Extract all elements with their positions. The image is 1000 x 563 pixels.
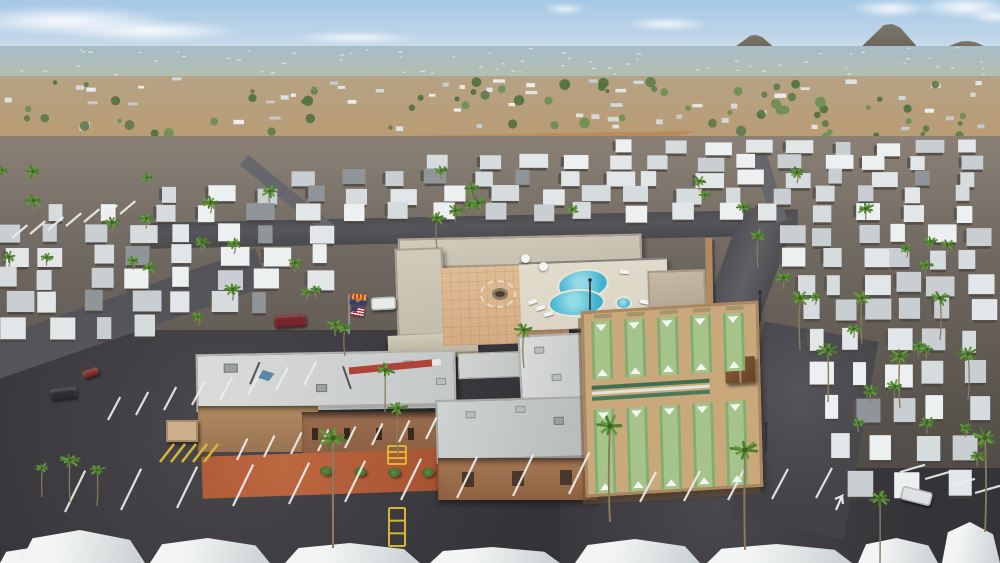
palm-crown [917,344,920,347]
palm-trunk [397,408,398,458]
palm-crown [966,352,970,356]
palm-crown [383,368,387,372]
palm-crown [905,247,907,249]
palm-crown [782,276,785,279]
palm-crown [454,209,457,212]
palm-crown [742,447,747,452]
palm-crown [268,190,271,193]
palm-crown [898,354,902,358]
palm-crown [146,177,148,179]
palm-trees [0,0,1000,563]
palm-crown [893,385,896,388]
palm-trunk [609,426,610,522]
palm-crown [852,327,855,330]
palm-crown [826,348,830,352]
palm-crown [756,234,759,237]
palm-crown [200,241,203,244]
palm-crown [796,171,799,174]
palm-crown [330,435,336,441]
palm-crown [798,296,802,300]
palm-crown [571,208,573,210]
palm-crown [925,264,928,267]
palm-crown [231,287,234,290]
palm-crown [110,221,113,224]
palm-crown [95,468,98,471]
palm-crown [929,240,931,242]
palm-crown [938,296,942,300]
palm-trunk [899,356,900,408]
palm-crown [396,406,400,410]
palm-crown [742,205,745,208]
palm-crown [946,244,949,247]
palm-crown [306,292,308,294]
palm-crown [860,296,864,300]
palm-trunk [940,298,941,340]
palm-crown [31,170,34,173]
palm-crown [148,266,151,269]
palm-crown [864,207,867,210]
palm-crown [440,169,442,171]
palm-crown [522,328,526,332]
palm-crown [976,454,979,457]
palm-trunk [744,450,745,550]
palm-crown [209,201,212,204]
palm-crown [132,259,134,261]
palm-crown [7,255,10,258]
palm-trunk [861,298,862,344]
palm-crown [698,180,701,183]
palm-crown [815,296,817,298]
palm-crown [983,436,988,441]
palm-crown [878,496,882,500]
palm-trunk [799,298,800,350]
palm-crown [471,187,474,190]
palm-crown [435,216,438,219]
palm-trunk [985,438,986,532]
palm-crown [607,423,612,428]
palm-crown [964,426,967,429]
aerial-photo [0,0,1000,563]
palm-crown [344,327,347,330]
palm-trunk [968,354,969,400]
palm-crown [1,169,3,171]
palm-crown [45,256,47,258]
palm-crown [145,217,148,220]
palm-crown [233,242,236,245]
palm-crown [868,390,871,393]
palm-crown [926,348,929,351]
palm-crown [704,194,706,196]
palm-crown [857,421,860,424]
palm-crown [197,316,199,318]
palm-crown [41,467,44,470]
palm-crown [926,421,929,424]
palm-crown [68,458,72,462]
palm-crown [294,261,297,264]
palm-crown [476,201,479,204]
palm-trunk [69,460,70,502]
palm-crown [334,323,337,326]
palm-crown [32,199,35,202]
palm-crown [315,288,317,290]
